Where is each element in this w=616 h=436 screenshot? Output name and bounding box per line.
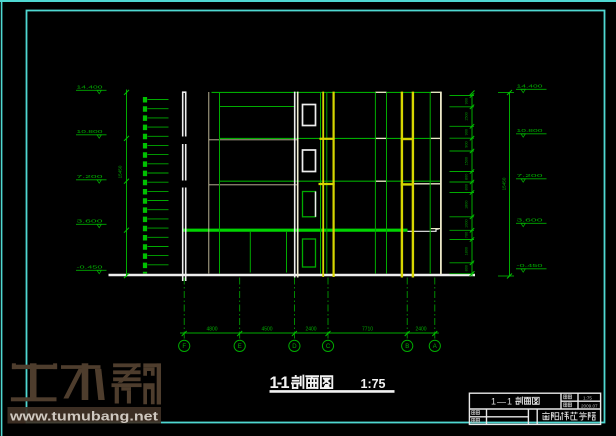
svg-text:14.400: 14.400: [517, 84, 543, 90]
svg-text:-0.450: -0.450: [517, 263, 544, 269]
svg-text:1:75: 1:75: [361, 377, 386, 391]
svg-text:3.600: 3.600: [517, 218, 544, 224]
svg-text:www.tumubang.net: www.tumubang.net: [9, 409, 159, 424]
svg-text:D: D: [292, 344, 297, 350]
svg-text:F: F: [182, 344, 186, 350]
svg-text:7.200: 7.200: [77, 174, 104, 180]
svg-text:C: C: [326, 344, 331, 350]
svg-text:1—1: 1—1: [491, 396, 512, 406]
svg-text:2400: 2400: [305, 326, 316, 332]
svg-text:1800: 1800: [465, 247, 469, 255]
svg-text:800: 800: [465, 174, 469, 180]
svg-text:B: B: [405, 344, 409, 350]
svg-text:1-1: 1-1: [270, 374, 290, 392]
svg-text:1500: 1500: [465, 157, 469, 165]
svg-text:7.200: 7.200: [517, 173, 544, 179]
svg-text:1800: 1800: [465, 200, 469, 208]
svg-text:3.600: 3.600: [77, 219, 104, 225]
svg-text:1:75: 1:75: [583, 395, 592, 400]
svg-text:E: E: [238, 344, 242, 350]
svg-text:A: A: [433, 344, 437, 350]
svg-text:10.800: 10.800: [77, 129, 103, 135]
svg-text:800: 800: [465, 184, 469, 190]
svg-text:7710: 7710: [362, 326, 373, 332]
svg-text:4500: 4500: [261, 326, 272, 332]
svg-text:700: 700: [465, 232, 469, 238]
svg-text:14.400: 14.400: [77, 85, 103, 91]
svg-text:800: 800: [465, 265, 469, 271]
svg-text:2009.07: 2009.07: [581, 403, 598, 408]
svg-text:15450: 15450: [502, 177, 507, 190]
svg-text:900: 900: [465, 141, 469, 147]
svg-text:4800: 4800: [206, 326, 217, 332]
svg-text:15450: 15450: [118, 165, 123, 178]
svg-text:900: 900: [465, 129, 469, 135]
svg-text:900: 900: [465, 98, 469, 104]
svg-text:1000: 1000: [465, 219, 469, 227]
svg-text:10.800: 10.800: [517, 128, 543, 134]
svg-text:-0.450: -0.450: [77, 265, 104, 271]
svg-text:1500: 1500: [465, 112, 469, 120]
svg-text:2400: 2400: [415, 326, 426, 332]
